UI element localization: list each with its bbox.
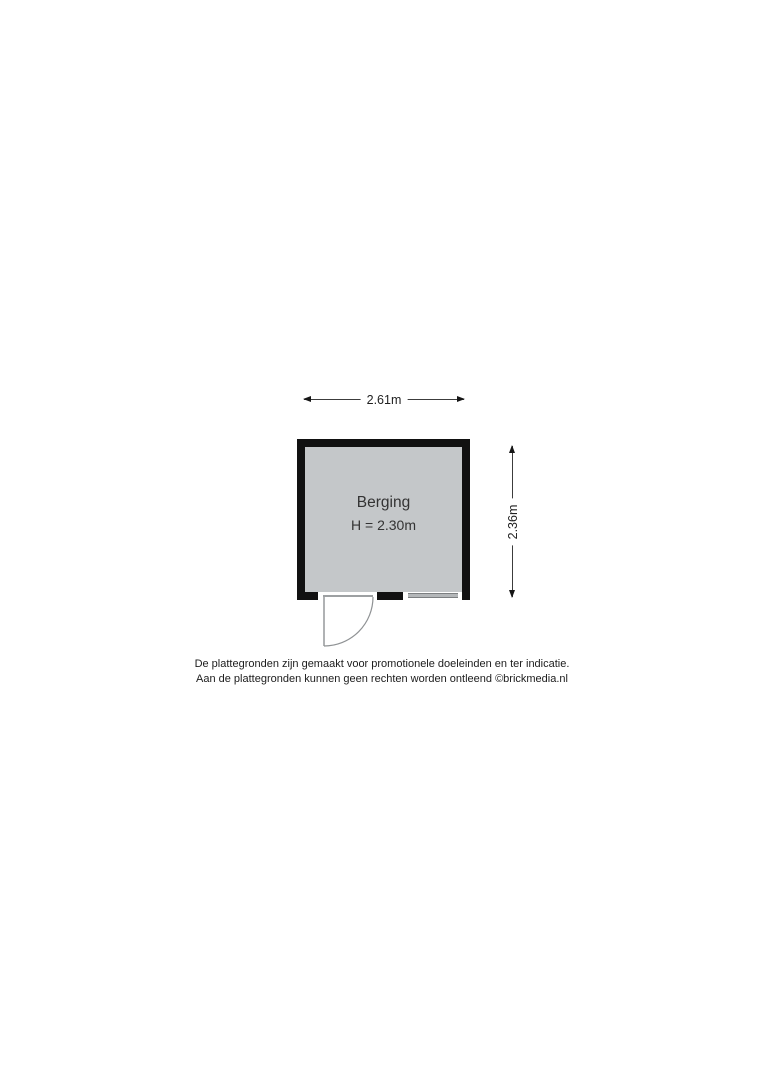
arrowhead-down-icon xyxy=(509,590,515,598)
disclaimer-line-1: De plattegronden zijn gemaakt voor promo… xyxy=(0,657,764,672)
window-icon xyxy=(408,593,458,598)
height-dimension: 2.36m xyxy=(506,445,520,598)
arrowhead-left-icon xyxy=(303,396,311,402)
disclaimer: De plattegronden zijn gemaakt voor promo… xyxy=(0,657,764,686)
door-swing-arc xyxy=(324,597,373,646)
door-swing-icon xyxy=(315,595,380,650)
disclaimer-line-2: Aan de plattegronden kunnen geen rechten… xyxy=(0,672,764,687)
width-dimension-label: 2.61m xyxy=(361,393,408,407)
room-name: Berging xyxy=(351,492,416,514)
floor-plan-page: 2.61m 2.36m Berging H = 2.30m De platteg… xyxy=(0,0,764,1080)
room-berging: Berging H = 2.30m xyxy=(297,439,470,600)
room-ceiling-height: H = 2.30m xyxy=(351,514,416,536)
room-label-block: Berging H = 2.30m xyxy=(351,492,416,536)
width-dimension: 2.61m xyxy=(303,393,465,407)
arrowhead-up-icon xyxy=(509,445,515,453)
height-dimension-label: 2.36m xyxy=(506,498,520,545)
arrowhead-right-icon xyxy=(457,396,465,402)
